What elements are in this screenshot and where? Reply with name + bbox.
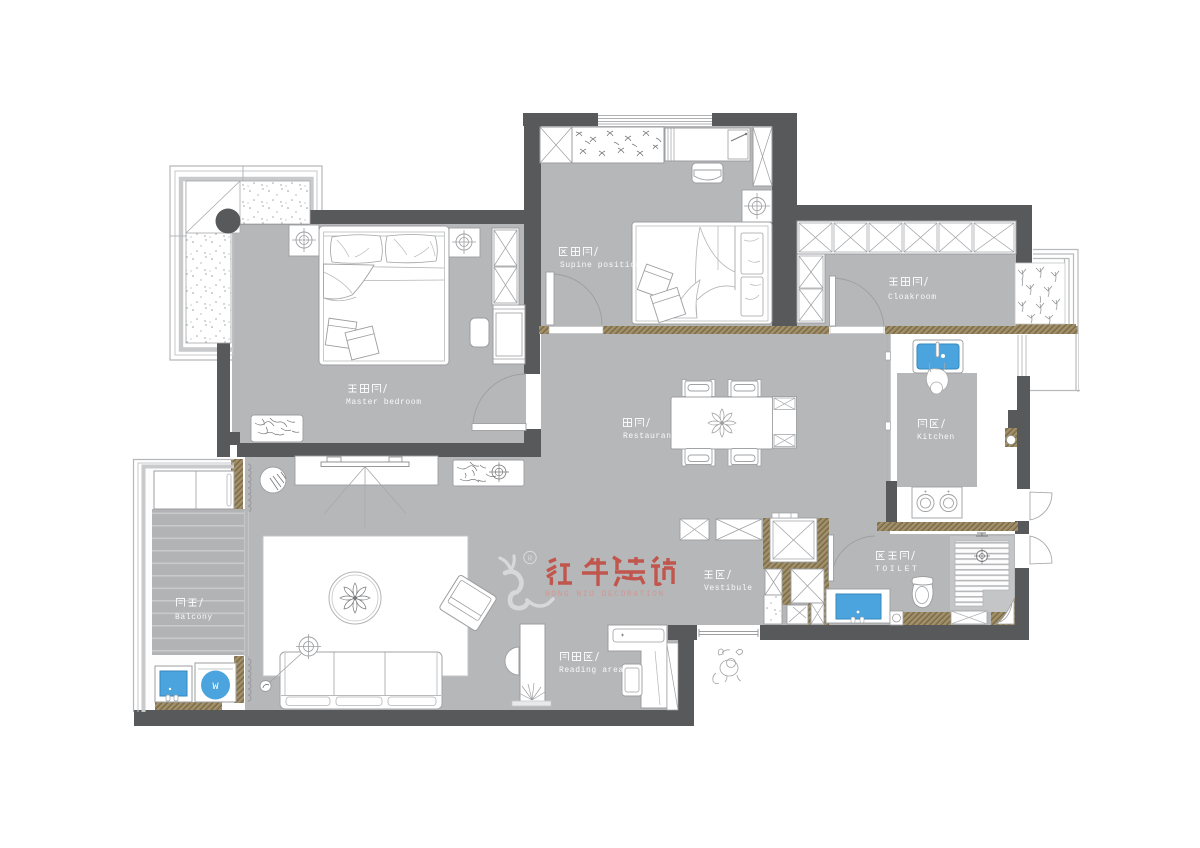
svg-text:Kitchen: Kitchen: [917, 433, 955, 442]
svg-text:Reading area: Reading area: [559, 666, 624, 675]
svg-text:Cloakroom: Cloakroom: [888, 293, 937, 302]
svg-text:W: W: [212, 682, 218, 693]
svg-text:Balcony: Balcony: [175, 613, 213, 622]
svg-text:Master bedroom: Master bedroom: [346, 398, 422, 407]
svg-text:TOILET: TOILET: [875, 565, 919, 574]
svg-text:Vestibule: Vestibule: [704, 584, 753, 593]
svg-text:R: R: [528, 556, 533, 564]
svg-text:Supine position: Supine position: [560, 261, 641, 270]
svg-text:Reception area: Reception area: [379, 576, 455, 585]
svg-text:HONG NIU DECORATION: HONG NIU DECORATION: [545, 590, 665, 599]
svg-text:Restaurant: Restaurant: [623, 432, 677, 441]
